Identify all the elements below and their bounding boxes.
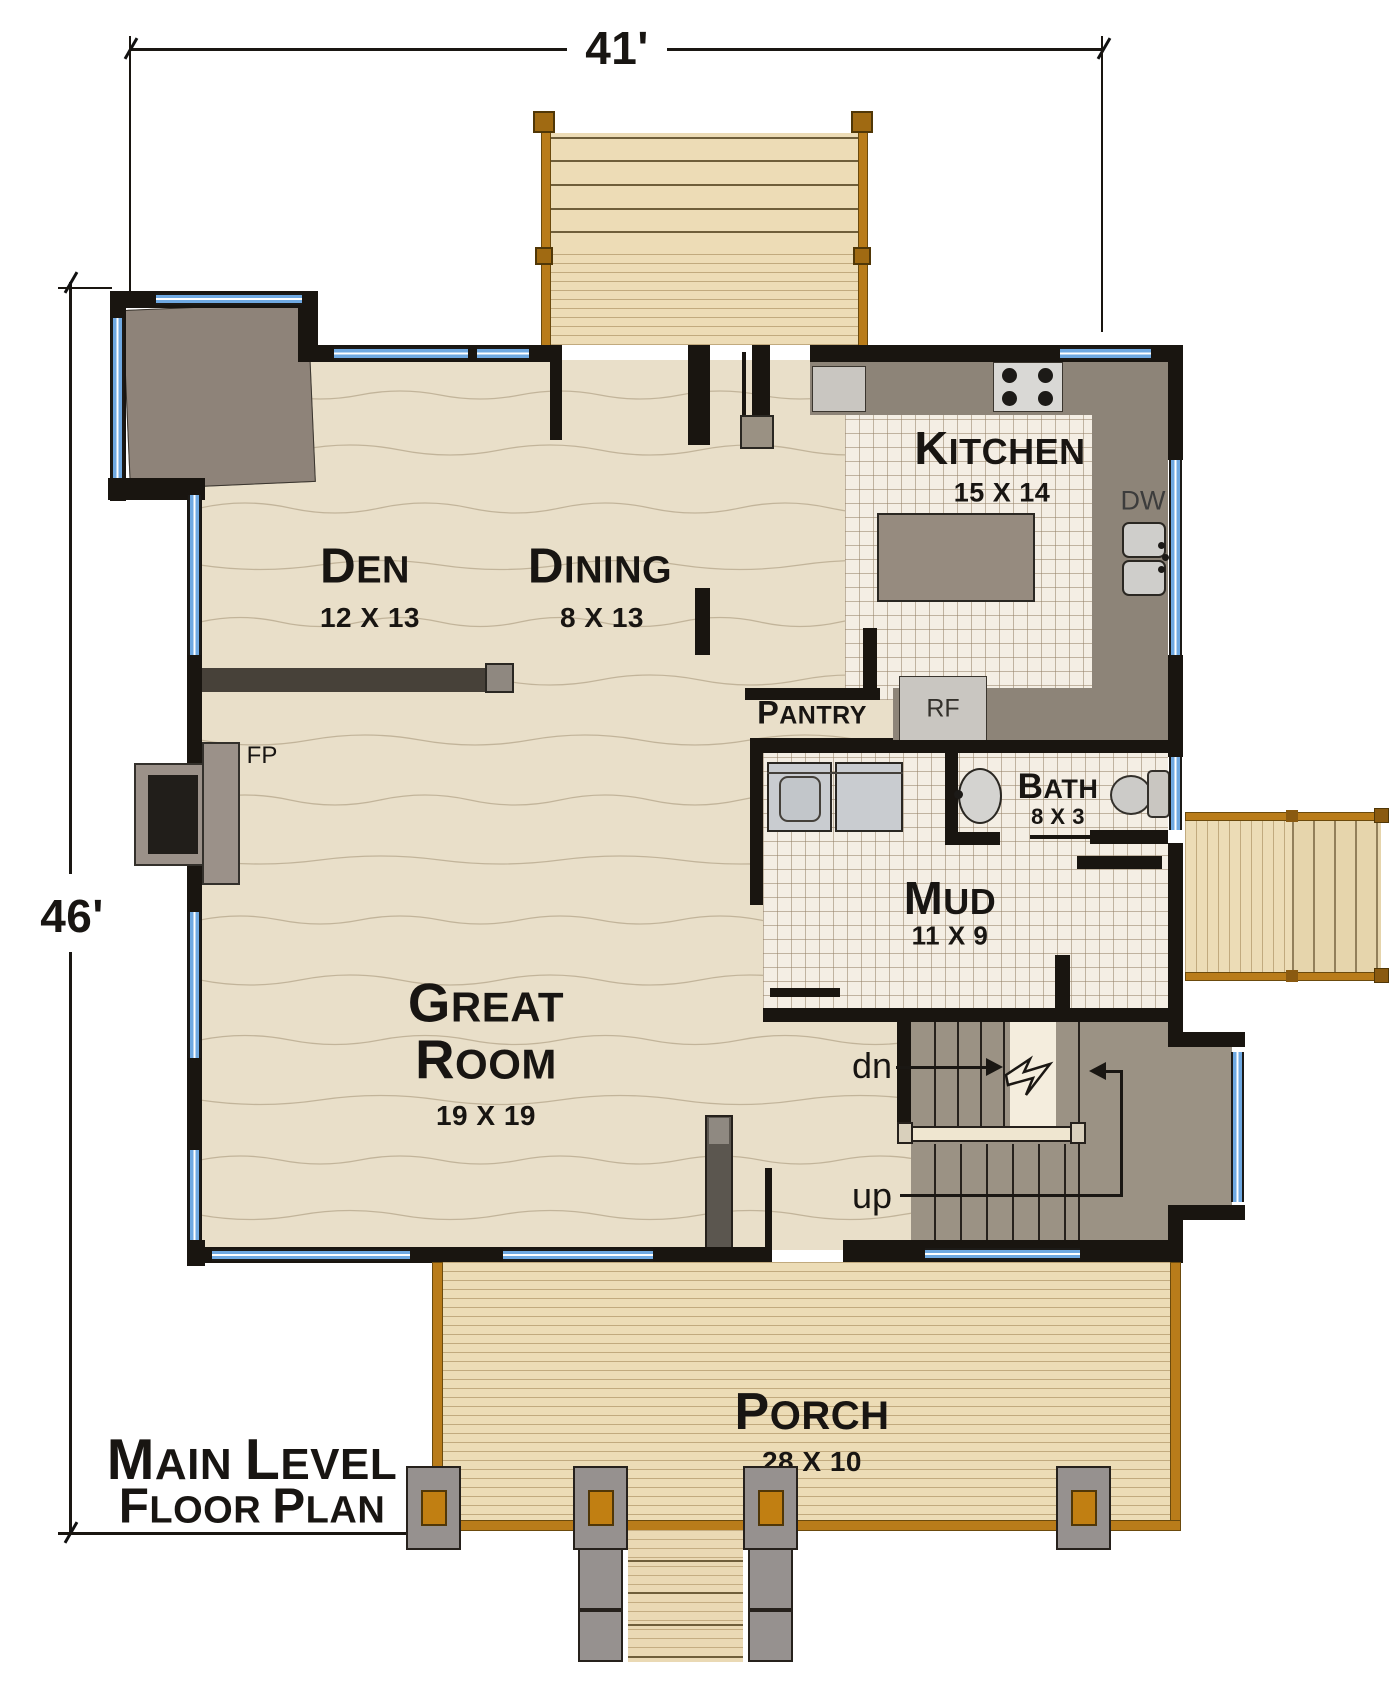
stair-tread — [934, 1022, 936, 1130]
stair-tread — [986, 1144, 988, 1250]
faucet-dot — [1158, 542, 1165, 549]
step-rail — [748, 1610, 793, 1662]
handrail-cap — [1070, 1122, 1086, 1144]
stair-tread — [980, 1022, 982, 1130]
porch-post-core — [588, 1490, 614, 1526]
step-edge — [628, 1624, 743, 1626]
porch-label: PORCH — [735, 1382, 890, 1442]
rear-door-panel — [740, 415, 774, 449]
side-deck-steps — [1292, 820, 1381, 976]
rear-door-jamb — [752, 345, 770, 420]
bath-label: BATH — [1018, 767, 1099, 807]
half-wall-post — [485, 663, 514, 693]
window — [1169, 757, 1182, 830]
rear-door-jamb — [688, 345, 710, 445]
up-arrow-line — [1120, 1072, 1123, 1197]
kitchen-size-label: 15 X 14 — [954, 478, 1051, 509]
dining-size-label: 8 X 13 — [560, 602, 644, 634]
kitchen-counter-appliance — [812, 366, 866, 412]
wall — [1168, 1205, 1245, 1220]
wall — [750, 738, 893, 753]
deck-step-edge — [551, 137, 858, 139]
stove-burner — [1002, 391, 1017, 406]
mud-label: MUD — [904, 871, 996, 925]
wall — [1168, 655, 1183, 757]
toilet-bowl — [1110, 775, 1152, 815]
height-dimension-label: 46' — [40, 889, 104, 943]
deck-post — [1286, 810, 1298, 822]
step-rail — [578, 1548, 623, 1610]
dimension-extension-line — [1101, 36, 1103, 332]
porch-post-core — [1071, 1490, 1097, 1526]
stair-tread — [1078, 1144, 1080, 1250]
wall — [695, 588, 710, 655]
down-arrow-line — [896, 1066, 988, 1069]
deck-post — [1374, 968, 1389, 983]
door-jamb — [1090, 830, 1168, 844]
stair-break-line — [1000, 1045, 1070, 1105]
fireplace-chimney — [202, 742, 240, 885]
kitchen-sink-basin — [1122, 522, 1166, 558]
wall — [750, 740, 763, 905]
stair-tread — [934, 1144, 936, 1250]
deck-step-edge — [551, 208, 858, 210]
down-arrow-head — [986, 1058, 1003, 1076]
deck-post — [1286, 970, 1298, 982]
stair-tread — [1078, 1022, 1080, 1130]
step-rail — [748, 1548, 793, 1610]
dining-label: DINING — [528, 538, 672, 595]
step-edge — [628, 1560, 743, 1562]
step-rail — [578, 1610, 623, 1662]
toilet-tank — [1147, 770, 1170, 818]
refrigerator-label: RF — [926, 695, 959, 724]
front-door-jamb — [765, 1168, 772, 1253]
stairs-down-label: dn — [852, 1045, 892, 1087]
stairs-up-label: up — [852, 1175, 892, 1217]
width-dimension-label: 41' — [585, 21, 649, 75]
rear-deck-boards — [551, 254, 858, 345]
dimension-extension-line — [58, 287, 112, 289]
wall — [187, 1240, 205, 1266]
faucet-dot — [1162, 554, 1169, 561]
dishwasher-label: DW — [1121, 486, 1166, 517]
fireplace-firebox — [148, 775, 198, 854]
wall — [550, 362, 562, 440]
bath-sink — [958, 768, 1002, 824]
window — [188, 912, 201, 1058]
wall — [1168, 843, 1183, 1035]
side-deck — [1185, 820, 1292, 976]
great-room-label: GREAT ROOM — [408, 975, 564, 1090]
window — [1169, 460, 1182, 655]
stair-tread — [1012, 1144, 1014, 1250]
plan-title-line2: FLOOR PLAN — [119, 1478, 386, 1535]
left-dimension-line — [69, 282, 72, 874]
deck-step-edge — [551, 231, 858, 233]
stove-burner — [1038, 368, 1053, 383]
porch-post-core — [421, 1490, 447, 1526]
up-arrow-line — [900, 1194, 1122, 1197]
kitchen-island — [877, 513, 1035, 602]
deck-post — [535, 247, 553, 265]
faucet-dot — [1158, 566, 1165, 573]
entry-steps — [628, 1530, 743, 1662]
stair-handrail — [903, 1126, 1083, 1142]
left-dimension-line — [69, 952, 72, 1534]
window — [212, 1249, 410, 1261]
deck-post — [853, 247, 871, 265]
stair-tread — [1038, 1144, 1040, 1250]
floor-plan-canvas: 41' 46' MAIN LEVEL FLOOR PLAN — [0, 0, 1400, 1683]
up-arrow-head — [1089, 1062, 1106, 1080]
pantry-label: PANTRY — [757, 695, 867, 732]
side-deck-rail — [1185, 972, 1381, 981]
side-deck-rail — [1185, 812, 1381, 821]
deck-rail-right — [858, 128, 868, 347]
deck-post — [533, 111, 555, 133]
deck-rail-left — [541, 128, 551, 347]
wall — [897, 1022, 911, 1132]
deck-post — [851, 111, 873, 133]
window — [503, 1249, 653, 1261]
half-wall — [202, 668, 512, 692]
wall — [1055, 955, 1070, 1010]
stove-burner — [1002, 368, 1017, 383]
step-edge — [628, 1656, 743, 1658]
door-leaf — [770, 988, 840, 997]
faucet-dot — [954, 790, 963, 799]
window — [925, 1248, 1080, 1260]
wall — [945, 832, 1000, 845]
step-edge — [628, 1592, 743, 1594]
window — [188, 495, 201, 655]
porch-post-core — [758, 1490, 784, 1526]
window — [1060, 347, 1152, 360]
den-label: DEN — [320, 538, 410, 595]
window — [188, 1150, 201, 1240]
window — [111, 318, 124, 483]
great-room-size-label: 19 X 19 — [436, 1100, 536, 1132]
landing-bump-out — [1168, 1047, 1232, 1207]
porch-rail-right — [1170, 1262, 1181, 1530]
kitchen-label: KITCHEN — [914, 421, 1085, 475]
handrail-cap — [897, 1122, 913, 1144]
stair-tread — [957, 1022, 959, 1130]
stove-burner — [1038, 391, 1053, 406]
stair-tread — [960, 1144, 962, 1250]
bath-size-label: 8 X 3 — [1031, 804, 1085, 830]
top-dimension-line — [667, 48, 1103, 51]
wall — [763, 1008, 1168, 1022]
dimension-extension-line — [129, 36, 131, 292]
wall — [1168, 1032, 1245, 1047]
deck-post — [1374, 808, 1389, 823]
deck-step-edge — [551, 160, 858, 162]
door-jamb — [1077, 856, 1162, 869]
wall — [1168, 345, 1183, 460]
den-size-label: 12 X 13 — [320, 602, 420, 634]
top-dimension-line — [130, 48, 567, 51]
window — [1231, 1052, 1244, 1202]
fireplace-label: FP — [247, 742, 278, 770]
window — [477, 347, 529, 360]
window — [334, 347, 468, 360]
rear-door-leaf — [742, 352, 746, 422]
corner-stoop — [122, 302, 316, 490]
stair-tread — [1064, 1144, 1066, 1250]
window — [156, 293, 302, 305]
door-leaf — [1030, 835, 1090, 839]
appliance-line — [767, 772, 903, 774]
up-arrow-line — [1106, 1070, 1123, 1073]
deck-step-edge — [551, 184, 858, 186]
washer-lid — [779, 776, 821, 822]
front-door-post-cap — [709, 1118, 729, 1144]
mud-size-label: 11 X 9 — [912, 921, 989, 952]
